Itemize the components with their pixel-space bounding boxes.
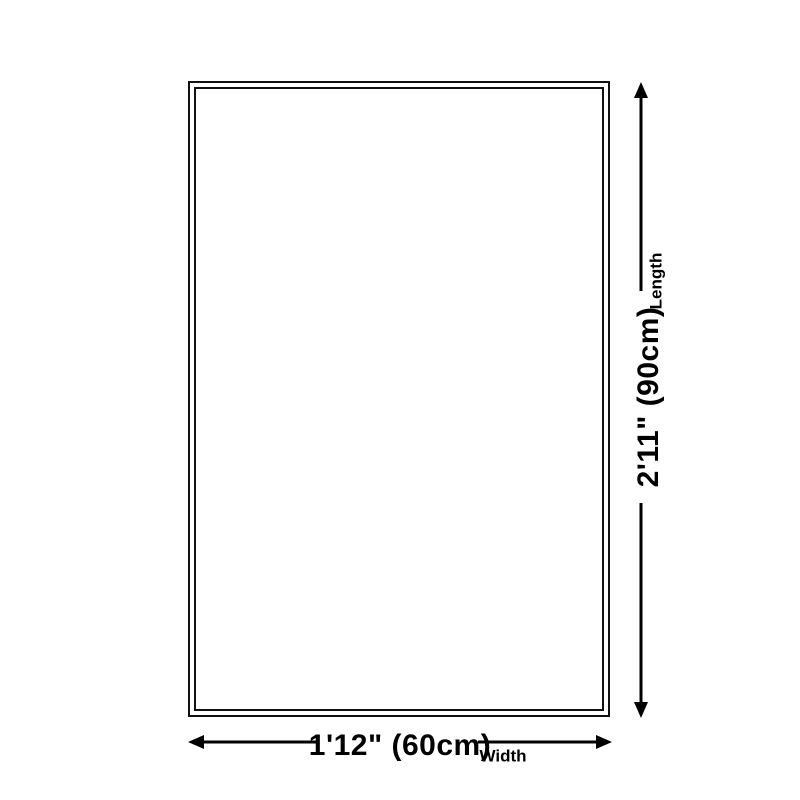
dimension-arrows: [0, 0, 800, 800]
width-dimension-label: Width: [479, 748, 526, 765]
width-dimension-value: 1'12" (60cm): [309, 731, 491, 761]
length-dimension-label: Length: [648, 253, 665, 310]
length-dimension-value: 2'11" (90cm): [634, 307, 664, 488]
dimension-diagram: 1'12" (60cm) Width 2'11" (90cm) Length: [0, 0, 800, 800]
